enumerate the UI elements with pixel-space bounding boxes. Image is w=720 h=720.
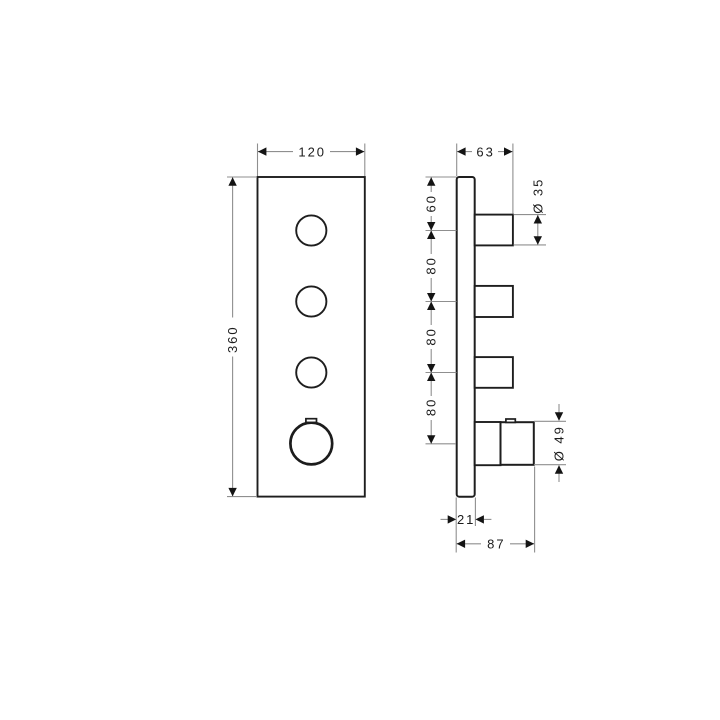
- svg-text:80: 80: [424, 398, 439, 416]
- svg-text:63: 63: [476, 144, 494, 159]
- svg-text:Ø 35: Ø 35: [530, 178, 545, 214]
- svg-text:Ø 49: Ø 49: [552, 425, 567, 461]
- svg-text:360: 360: [225, 325, 240, 353]
- svg-text:87: 87: [487, 537, 505, 552]
- svg-text:120: 120: [298, 144, 326, 159]
- svg-text:80: 80: [424, 256, 439, 274]
- svg-text:80: 80: [424, 327, 439, 345]
- svg-text:21: 21: [457, 512, 475, 527]
- svg-text:60: 60: [424, 194, 439, 212]
